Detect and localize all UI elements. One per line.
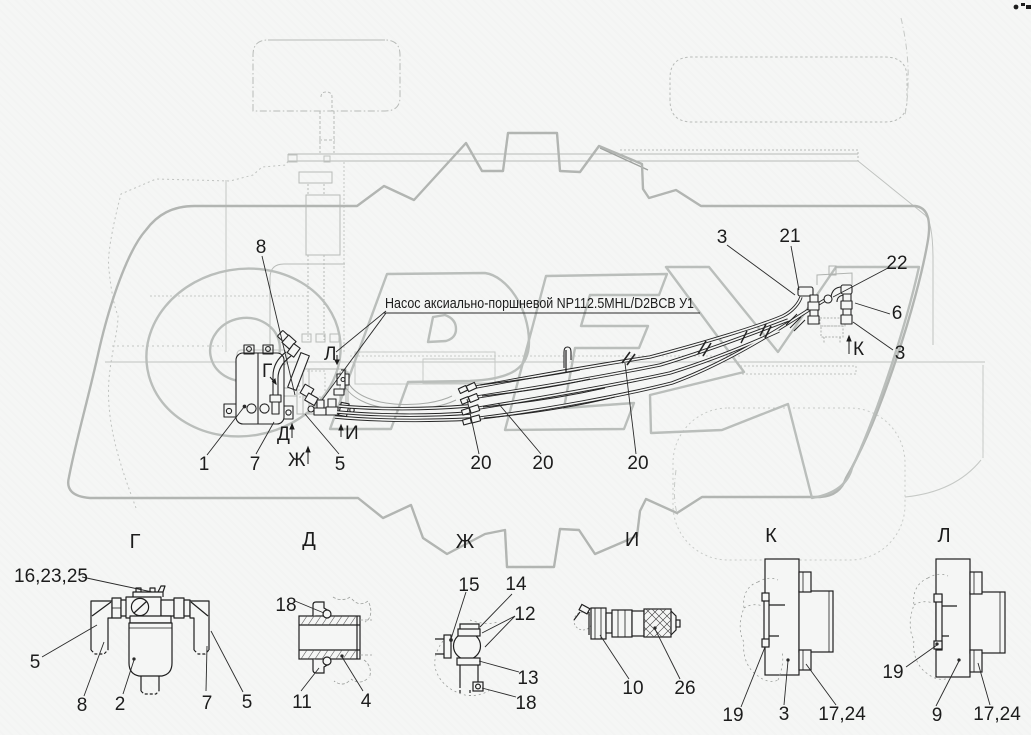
svg-text:15: 15 bbox=[458, 575, 479, 596]
svg-text:Л: Л bbox=[324, 344, 336, 365]
svg-text:К: К bbox=[853, 339, 864, 360]
svg-text:9: 9 bbox=[932, 705, 943, 726]
svg-text:18: 18 bbox=[275, 595, 296, 616]
svg-text:3: 3 bbox=[895, 343, 906, 364]
svg-text:3: 3 bbox=[717, 227, 728, 248]
svg-text:Д: Д bbox=[302, 529, 316, 551]
svg-text:22: 22 bbox=[886, 253, 907, 274]
svg-text:18: 18 bbox=[515, 693, 536, 714]
svg-text:10: 10 bbox=[622, 678, 643, 699]
svg-text:11: 11 bbox=[292, 692, 312, 713]
svg-text:8: 8 bbox=[77, 695, 88, 716]
svg-text:17,24: 17,24 bbox=[818, 704, 866, 725]
svg-text:14: 14 bbox=[505, 574, 527, 595]
svg-text:Ж: Ж bbox=[288, 450, 306, 471]
svg-text:19: 19 bbox=[882, 662, 903, 683]
svg-text:21: 21 bbox=[779, 226, 800, 247]
svg-text:16,23,25: 16,23,25 bbox=[14, 566, 88, 587]
svg-text:1: 1 bbox=[199, 454, 210, 475]
svg-text:20: 20 bbox=[532, 453, 553, 474]
svg-text:7: 7 bbox=[202, 693, 213, 714]
svg-text:5: 5 bbox=[30, 652, 41, 673]
svg-text:19: 19 bbox=[722, 705, 743, 726]
svg-text:И: И bbox=[625, 529, 639, 551]
svg-text:5: 5 bbox=[242, 692, 253, 713]
svg-text:К: К bbox=[765, 525, 777, 547]
svg-text:Л: Л bbox=[937, 525, 950, 547]
svg-text:17,24: 17,24 bbox=[973, 704, 1021, 725]
svg-text:Г: Г bbox=[262, 361, 272, 382]
svg-text:3: 3 bbox=[779, 704, 790, 725]
svg-text:20: 20 bbox=[470, 453, 491, 474]
svg-text:5: 5 bbox=[335, 454, 346, 475]
svg-text:4: 4 bbox=[361, 691, 372, 712]
svg-text:Г: Г bbox=[130, 531, 141, 553]
svg-text:Д: Д bbox=[277, 424, 290, 445]
svg-text:Насос аксиально-поршневой NP11: Насос аксиально-поршневой NP112.5MHL/D2B… bbox=[385, 296, 694, 312]
svg-text:7: 7 bbox=[250, 454, 261, 475]
svg-text:И: И bbox=[345, 423, 359, 444]
svg-text:13: 13 bbox=[517, 668, 538, 689]
svg-text:6: 6 bbox=[892, 303, 903, 324]
svg-text:Ж: Ж bbox=[456, 531, 475, 553]
svg-text:8: 8 bbox=[256, 237, 267, 258]
svg-text:2: 2 bbox=[115, 694, 126, 715]
svg-text:26: 26 bbox=[674, 678, 695, 699]
svg-text:20: 20 bbox=[627, 453, 648, 474]
svg-text:12: 12 bbox=[514, 604, 535, 625]
